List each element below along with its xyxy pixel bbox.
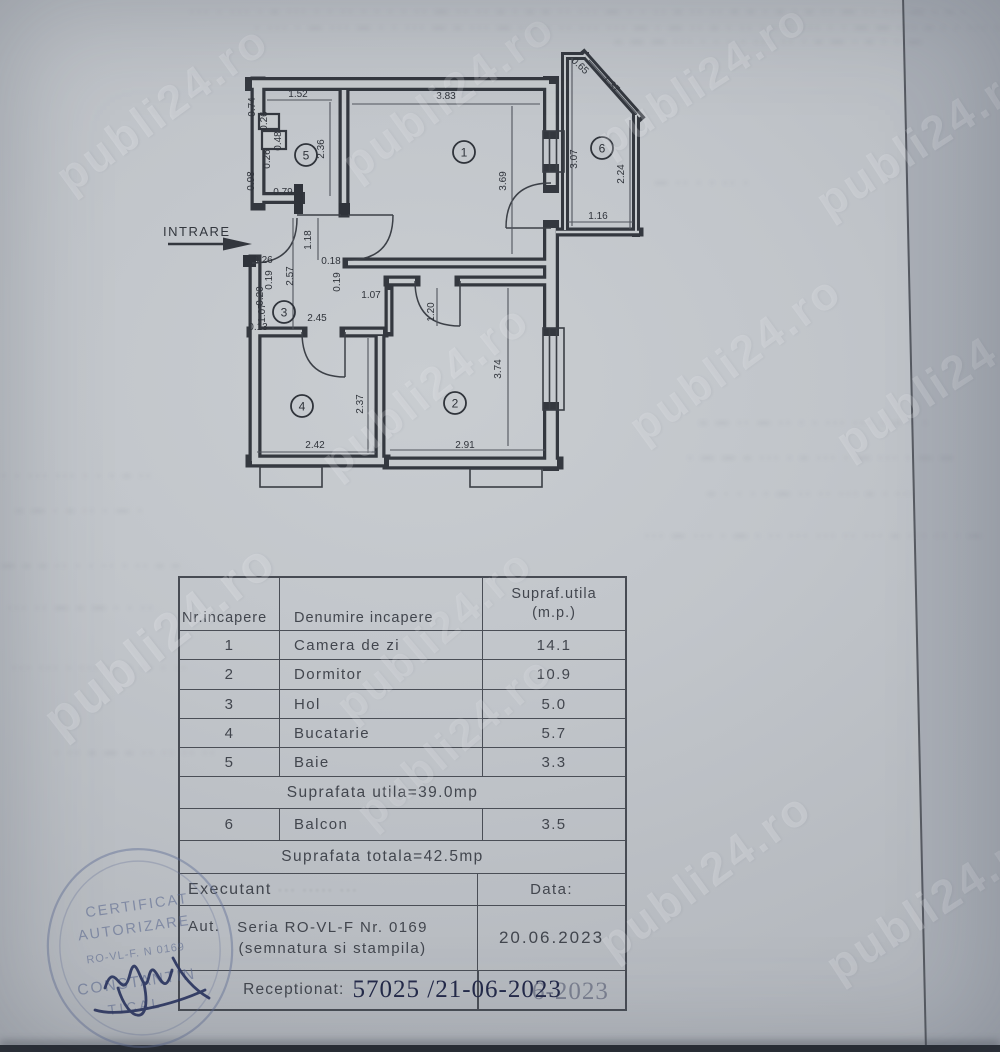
dim-label: 1.07 [361, 290, 381, 301]
table-row: 4 Bucatarie 5.7 [180, 718, 625, 747]
dim-label: 3.07 [569, 149, 580, 169]
table-row: 1 Camera de zi 14.1 [180, 630, 625, 659]
dim-label: 0.13 [248, 322, 268, 333]
table-row: 2 Dormitor 10.9 [180, 659, 625, 689]
balcon-row: 6 Balcon 3.5 [180, 808, 625, 840]
room-number: 3 [281, 306, 288, 320]
dim-label: 0.26 [253, 255, 273, 266]
row-name: Dormitor [294, 666, 363, 683]
dim-label: 1.18 [303, 230, 314, 250]
bleed-noise-line: — ·· · · ·· · [655, 175, 751, 189]
dim-label: 1.20 [426, 302, 437, 322]
dim-label: 0.19 [332, 272, 343, 292]
dim-label: 2.57 [285, 266, 296, 286]
table-header-row: Nr.incapere Denumire incapere Supraf.uti… [180, 578, 625, 630]
row-area: 5.0 [541, 696, 566, 713]
row-name: Hol [294, 696, 321, 713]
bleed-noise-line: – — · – ·· · — · [16, 503, 145, 517]
row-area: 5.7 [541, 725, 566, 742]
room-number: 1 [461, 146, 468, 160]
row-name: Bucatarie [294, 725, 370, 742]
row-name: Camera de zi [294, 637, 400, 654]
bleed-noise-line: ··· · ··· · – ··· · · ·· · · · · ·· — ··… [190, 4, 969, 18]
dim-label: 3.69 [498, 171, 509, 191]
row-nr: 3 [225, 696, 235, 713]
dim-label: 2.45 [307, 313, 327, 324]
dim-label: 3.74 [493, 359, 504, 379]
entrance-label: INTRARE [163, 224, 231, 239]
dim-label: 0.26 [262, 149, 273, 169]
dim-label: 0.26 [259, 111, 270, 131]
authorization-stamp: CERTIFICAT AUTORIZARE RO-VL-F. N 0169 CO… [25, 838, 257, 1052]
row-nr: 6 [225, 816, 235, 833]
header-denumire: Denumire incapere [279, 578, 482, 630]
row-area: 10.9 [537, 666, 572, 683]
dim-label: 2.91 [455, 440, 475, 451]
dimension-labels: 1.520.740.260.480.260.980.792.363.833.69… [246, 56, 627, 451]
row-area: 3.5 [541, 816, 566, 833]
dim-label: 3.83 [436, 91, 456, 102]
watermark-text: publi24.ro [618, 263, 852, 454]
receptionat-label: Receptionat: [243, 981, 344, 999]
bleed-noise-line: · ··· · — ··· — · · ··· — – ··· — ··· · … [255, 20, 1000, 34]
bleed-noise-line: – — ·· — ·· · · ··· ··· · – · · [700, 415, 930, 429]
floor-plan: 1.520.740.260.480.260.980.792.363.833.69… [150, 40, 650, 495]
bleed-noise-line: ··· ·· — – — · · ·· [8, 600, 155, 614]
room-number: 6 [599, 142, 606, 156]
dim-label: 0.98 [246, 171, 257, 191]
entrance-arrow-head-icon [223, 238, 252, 251]
bleed-noise-line: ··· ··· · ··· ·· · ·· · ·· [12, 660, 189, 674]
bleed-noise-line: · · ··· ··· · · · – ·· [2, 468, 153, 482]
scanned-document-page: 1.520.740.260.480.260.980.792.363.833.69… [0, 0, 1000, 1052]
table-row: 3 Hol 5.0 [180, 689, 625, 718]
dim-label: 2.37 [355, 394, 366, 414]
dim-label: 1.52 [288, 89, 308, 100]
bleed-noise-line: – — — ··· · · · · ··· ·· · – — · – · · — [615, 34, 924, 48]
dim-label: 0.48 [273, 131, 284, 151]
row-name: Balcon [294, 816, 348, 833]
room-number: 2 [452, 397, 459, 411]
table-row: 5 Baie 3.3 [180, 747, 625, 776]
row-name: Baie [294, 754, 330, 771]
row-nr: 4 [225, 725, 235, 742]
header-suprafata: Supraf.utila (m.p.) [482, 578, 625, 630]
dimension-lines [257, 58, 637, 453]
row-nr: 1 [225, 637, 235, 654]
dim-label: 0.79 [273, 187, 293, 198]
windows [260, 131, 564, 487]
room-number: 4 [299, 400, 306, 414]
dim-label: 0.74 [247, 97, 258, 117]
row-nr: 5 [225, 754, 235, 771]
dim-label: 2.42 [305, 440, 325, 451]
dim-label: 0.18 [321, 256, 341, 267]
faded-text: ··· ····· ··· [278, 882, 359, 897]
header-nr-incapere: Nr.incapere [180, 578, 279, 630]
bleed-noise-line: — – – ·· · · ·· · ·· – – [2, 558, 182, 572]
dim-label: 2.24 [616, 164, 627, 184]
date-cell: 20.06.2023 [477, 906, 625, 970]
receptionat-stamped-value: 57025 /21-06-2023 [353, 976, 562, 1004]
row-area: 14.1 [537, 637, 572, 654]
dim-label: 1.07 [257, 303, 268, 323]
walls [252, 54, 640, 463]
entrance: INTRARE [163, 224, 252, 251]
suprafata-utila-row: Suprafata utila=39.0mp [180, 776, 625, 808]
room-number: 5 [303, 149, 310, 163]
row-area: 3.3 [541, 754, 566, 771]
row-nr: 2 [225, 666, 235, 683]
stamp-overprint-ghost: 6-2023 [532, 978, 609, 1006]
stamp-line: RO-VL-F. N 0169 [86, 941, 186, 967]
dim-label: 1.16 [588, 211, 608, 222]
data-label-cell: Data: [477, 874, 625, 905]
bleed-noise-line: – · · · · — ·· ·· ··· – · ··· [708, 486, 917, 500]
dim-label: 0.20 [255, 286, 266, 306]
